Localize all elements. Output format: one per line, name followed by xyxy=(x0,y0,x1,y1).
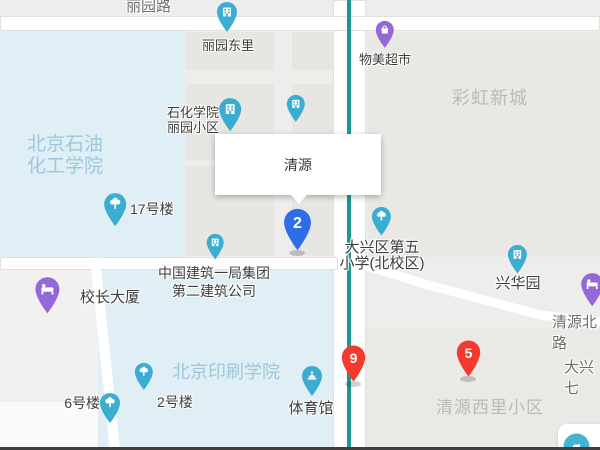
svg-text:2: 2 xyxy=(293,215,302,232)
building-icon xyxy=(292,100,299,108)
popup-title: 清源 xyxy=(284,155,312,175)
principal-tower-pin[interactable] xyxy=(33,276,62,319)
hotel-east-pin[interactable] xyxy=(579,272,600,312)
marker-9[interactable]: 9 xyxy=(340,344,367,388)
gymnasium-label[interactable]: 体育馆 xyxy=(288,400,333,418)
building-icon xyxy=(226,104,235,114)
building-6-label[interactable]: 6号楼 xyxy=(64,395,100,412)
building-17-label[interactable]: 17号楼 xyxy=(130,201,174,218)
svg-text:5: 5 xyxy=(464,345,472,361)
popup-pointer xyxy=(291,195,307,204)
gymnasium-pin[interactable] xyxy=(300,365,324,402)
building-2-pin[interactable] xyxy=(133,362,155,396)
place-popup[interactable]: 清源 xyxy=(215,134,381,195)
principal-tower-label[interactable]: 校长大厦 xyxy=(80,289,140,307)
shihua-liyuan-community-label[interactable]: 石化学院 丽园小区 xyxy=(167,106,219,135)
china-construction-first-group-label[interactable]: 中国建筑一局集团 第二建筑公司 xyxy=(158,265,270,300)
china-construction-first-group-pin[interactable] xyxy=(205,233,225,265)
liyuan-dongli-pin[interactable] xyxy=(215,1,239,38)
building-icon xyxy=(513,250,521,259)
marker-5[interactable]: 5 xyxy=(455,339,482,383)
marker-2[interactable]: 2 xyxy=(282,207,313,257)
daxing-no5-primary-school-label[interactable]: 大兴区第五 小学(北校区) xyxy=(340,240,425,272)
wumei-supermarket-pin[interactable] xyxy=(374,20,396,54)
building-icon xyxy=(212,238,219,246)
liyuan-dongli-label[interactable]: 丽园东里 xyxy=(202,38,254,54)
building-icon xyxy=(223,8,231,17)
building-6-pin[interactable] xyxy=(98,392,122,429)
shihua-liyuan-community-pin[interactable] xyxy=(217,97,243,137)
building-2-label[interactable]: 2号楼 xyxy=(157,394,193,411)
xinghuayuan-pin[interactable] xyxy=(506,244,529,279)
wumei-supermarket-label[interactable]: 物美超市 xyxy=(359,52,411,68)
svg-text:9: 9 xyxy=(349,350,357,366)
map-canvas[interactable]: 北京石油 化工学院彩虹新城北京印刷学院清源西里小区丽园路清源北路大兴七 丽园东里… xyxy=(0,0,600,450)
daxing-no5-primary-school-pin[interactable] xyxy=(370,206,393,241)
building-17-pin[interactable] xyxy=(102,192,128,232)
hidden-poi-pin[interactable] xyxy=(285,94,307,128)
